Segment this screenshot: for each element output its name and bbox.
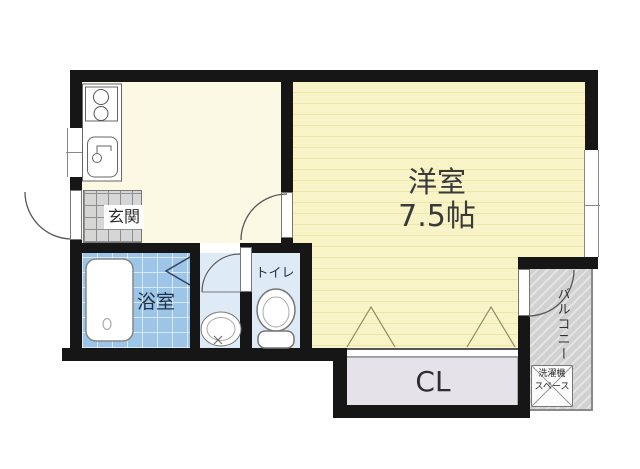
washbasin-room-floor bbox=[200, 253, 240, 348]
main-room-door-leaf bbox=[281, 192, 293, 238]
washer-space-label-line1: 洗濯機 bbox=[531, 368, 573, 381]
entrance-door-leaf bbox=[70, 190, 82, 240]
wall-toilet-right bbox=[300, 243, 312, 361]
wall-closet-bottom bbox=[333, 405, 522, 418]
wall-top bbox=[70, 70, 598, 82]
closet-door-track bbox=[345, 348, 518, 357]
wall-balcony-top bbox=[518, 257, 598, 269]
washer-space-label-line2: スペース bbox=[531, 381, 573, 394]
wall-bathroom-right bbox=[190, 243, 200, 361]
wall-sanitary-bottom bbox=[62, 348, 346, 361]
washbasin-door-opening bbox=[200, 243, 240, 253]
window-icon-right-wall bbox=[584, 150, 599, 257]
toilet-label: トイレ bbox=[250, 264, 300, 282]
main-room-size-label: 7.5帖 bbox=[372, 199, 502, 235]
window-icon-left-wall bbox=[67, 128, 84, 177]
closet-label: CL bbox=[399, 362, 467, 402]
floor-plan: 洋室 7.5帖 玄関 浴室 トイレ CL バルコニー 洗濯機 スペース bbox=[0, 0, 640, 469]
washer-space-label: 洗濯機 スペース bbox=[531, 368, 573, 393]
entrance-label: 玄関 bbox=[104, 205, 144, 229]
main-room-label: 洋室 bbox=[377, 165, 497, 199]
door-swing-arc-icon-entrance bbox=[25, 192, 70, 239]
balcony-door-leaf bbox=[518, 269, 530, 316]
bathroom-label: 浴室 bbox=[128, 291, 184, 314]
balcony-label: バルコニー bbox=[549, 282, 575, 366]
